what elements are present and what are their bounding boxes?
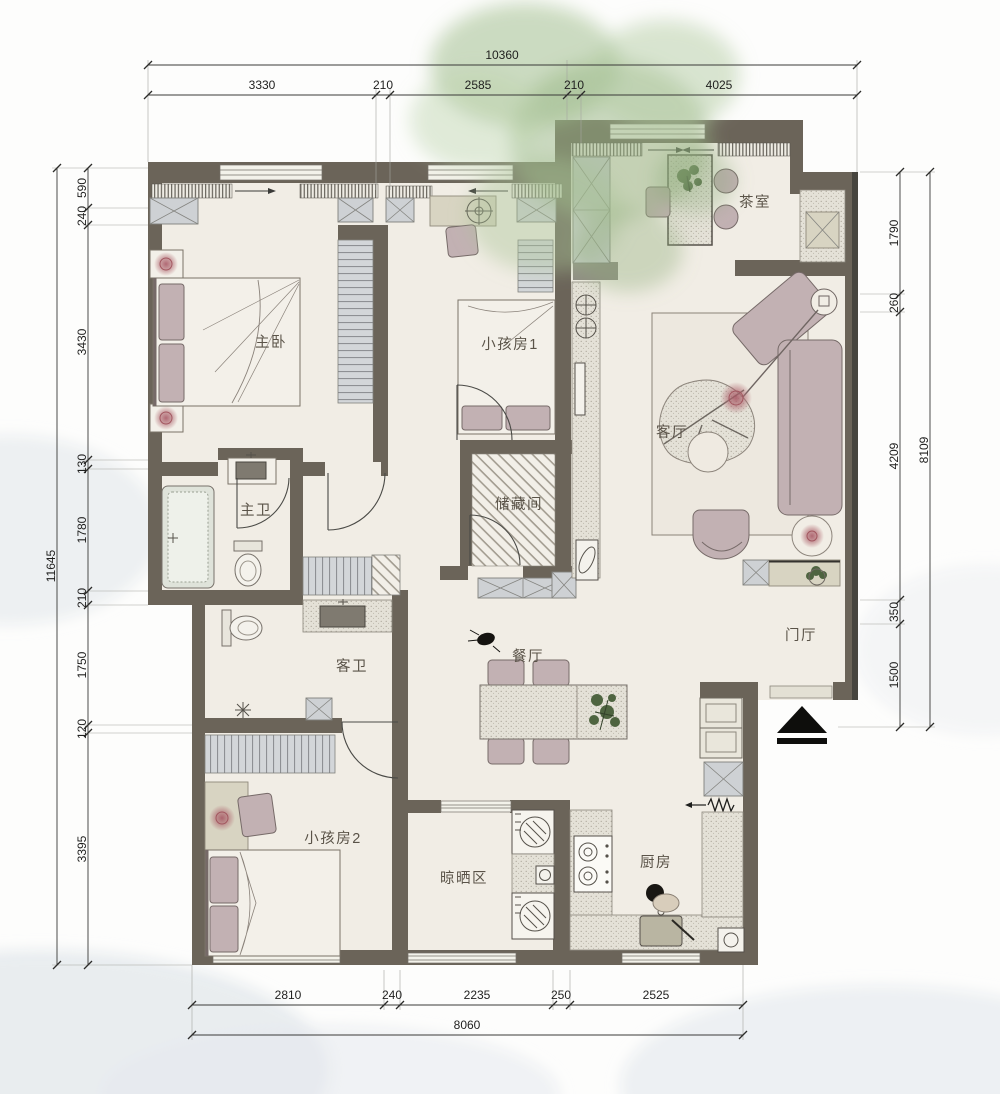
- dim-top-seg-0: 3330: [249, 78, 276, 92]
- dim-left-seg-6: 1750: [75, 651, 89, 678]
- kitchen-sink: [640, 916, 682, 946]
- dim-top-seg-3: 210: [564, 78, 584, 92]
- dim-left-seg-4: 1780: [75, 516, 89, 543]
- entry-threshold: [770, 686, 832, 698]
- room-label-master-bath: 主卫: [240, 502, 272, 519]
- dim-right-seg-1: 260: [887, 293, 901, 313]
- room-label-drying-area: 晾晒区: [440, 870, 488, 887]
- floor-plan-drawing: 主卧 小孩房1 茶室 客厅 主卫 储藏间 客卫 餐厅 门厅 小孩房2 晾晒区 厨…: [0, 0, 1000, 1094]
- armchair: [693, 510, 749, 559]
- room-label-master-bedroom: 主卧: [255, 334, 287, 351]
- dim-bottom-seg-0: 2810: [275, 988, 302, 1002]
- dim-left-total: 11645: [44, 549, 58, 582]
- kids2-chair: [237, 793, 276, 837]
- drying-area-fixtures: [512, 810, 554, 939]
- dim-top-seg-4: 4025: [706, 78, 733, 92]
- central-cabinet-strip: [572, 282, 600, 580]
- dim-bottom-seg-3: 250: [551, 988, 571, 1002]
- shower-head-icon: [235, 702, 251, 718]
- dim-bottom-seg-2: 2235: [464, 988, 491, 1002]
- dim-top-seg-1: 210: [373, 78, 393, 92]
- washing-machine: [512, 893, 554, 939]
- dim-left-seg-3: 130: [75, 454, 89, 474]
- dim-left-seg-8: 3395: [75, 835, 89, 862]
- dim-right-seg-0: 1790: [887, 219, 901, 246]
- foyer-console: [769, 560, 840, 586]
- floor-plan-page: 主卧 小孩房1 茶室 客厅 主卫 储藏间 客卫 餐厅 门厅 小孩房2 晾晒区 厨…: [0, 0, 1000, 1094]
- room-label-living-room: 客厅: [656, 424, 688, 441]
- dim-bottom-seg-1: 240: [382, 988, 402, 1002]
- dim-left-seg-0: 590: [75, 178, 89, 198]
- dim-right-seg-3: 350: [887, 602, 901, 622]
- room-label-kids-room-2: 小孩房2: [304, 830, 362, 847]
- dim-top-seg-2: 2585: [465, 78, 492, 92]
- guest-toilet: [230, 616, 262, 640]
- room-label-kitchen: 厨房: [640, 854, 672, 871]
- dim-right-total: 8109: [917, 436, 931, 463]
- dim-right-seg-2: 4209: [887, 442, 901, 469]
- room-label-tea-room: 茶室: [739, 194, 771, 211]
- room-label-foyer: 门厅: [785, 627, 817, 644]
- dim-bottom-seg-4: 2525: [643, 988, 670, 1002]
- pouf: [688, 432, 728, 472]
- right-wall-dark-edge: [852, 172, 858, 700]
- tea-room-niche-cabinet: [800, 190, 845, 262]
- washing-machine: [512, 810, 554, 854]
- room-label-guest-bath: 客卫: [336, 658, 368, 675]
- floor-lamp: [811, 289, 837, 315]
- dim-left-seg-7: 120: [75, 719, 89, 739]
- room-label-dining: 餐厅: [512, 648, 544, 665]
- dim-top-total: 10360: [485, 48, 519, 62]
- room-label-kids-room-1: 小孩房1: [481, 336, 539, 353]
- dim-right-seg-4: 1500: [887, 661, 901, 688]
- dim-left-seg-5: 210: [75, 588, 89, 608]
- room-label-storage: 储藏间: [495, 496, 543, 513]
- dim-left-seg-1: 240: [75, 206, 89, 226]
- dim-left-seg-2: 3430: [75, 328, 89, 355]
- dim-bottom-total: 8060: [454, 1018, 481, 1032]
- sofa: [778, 340, 842, 515]
